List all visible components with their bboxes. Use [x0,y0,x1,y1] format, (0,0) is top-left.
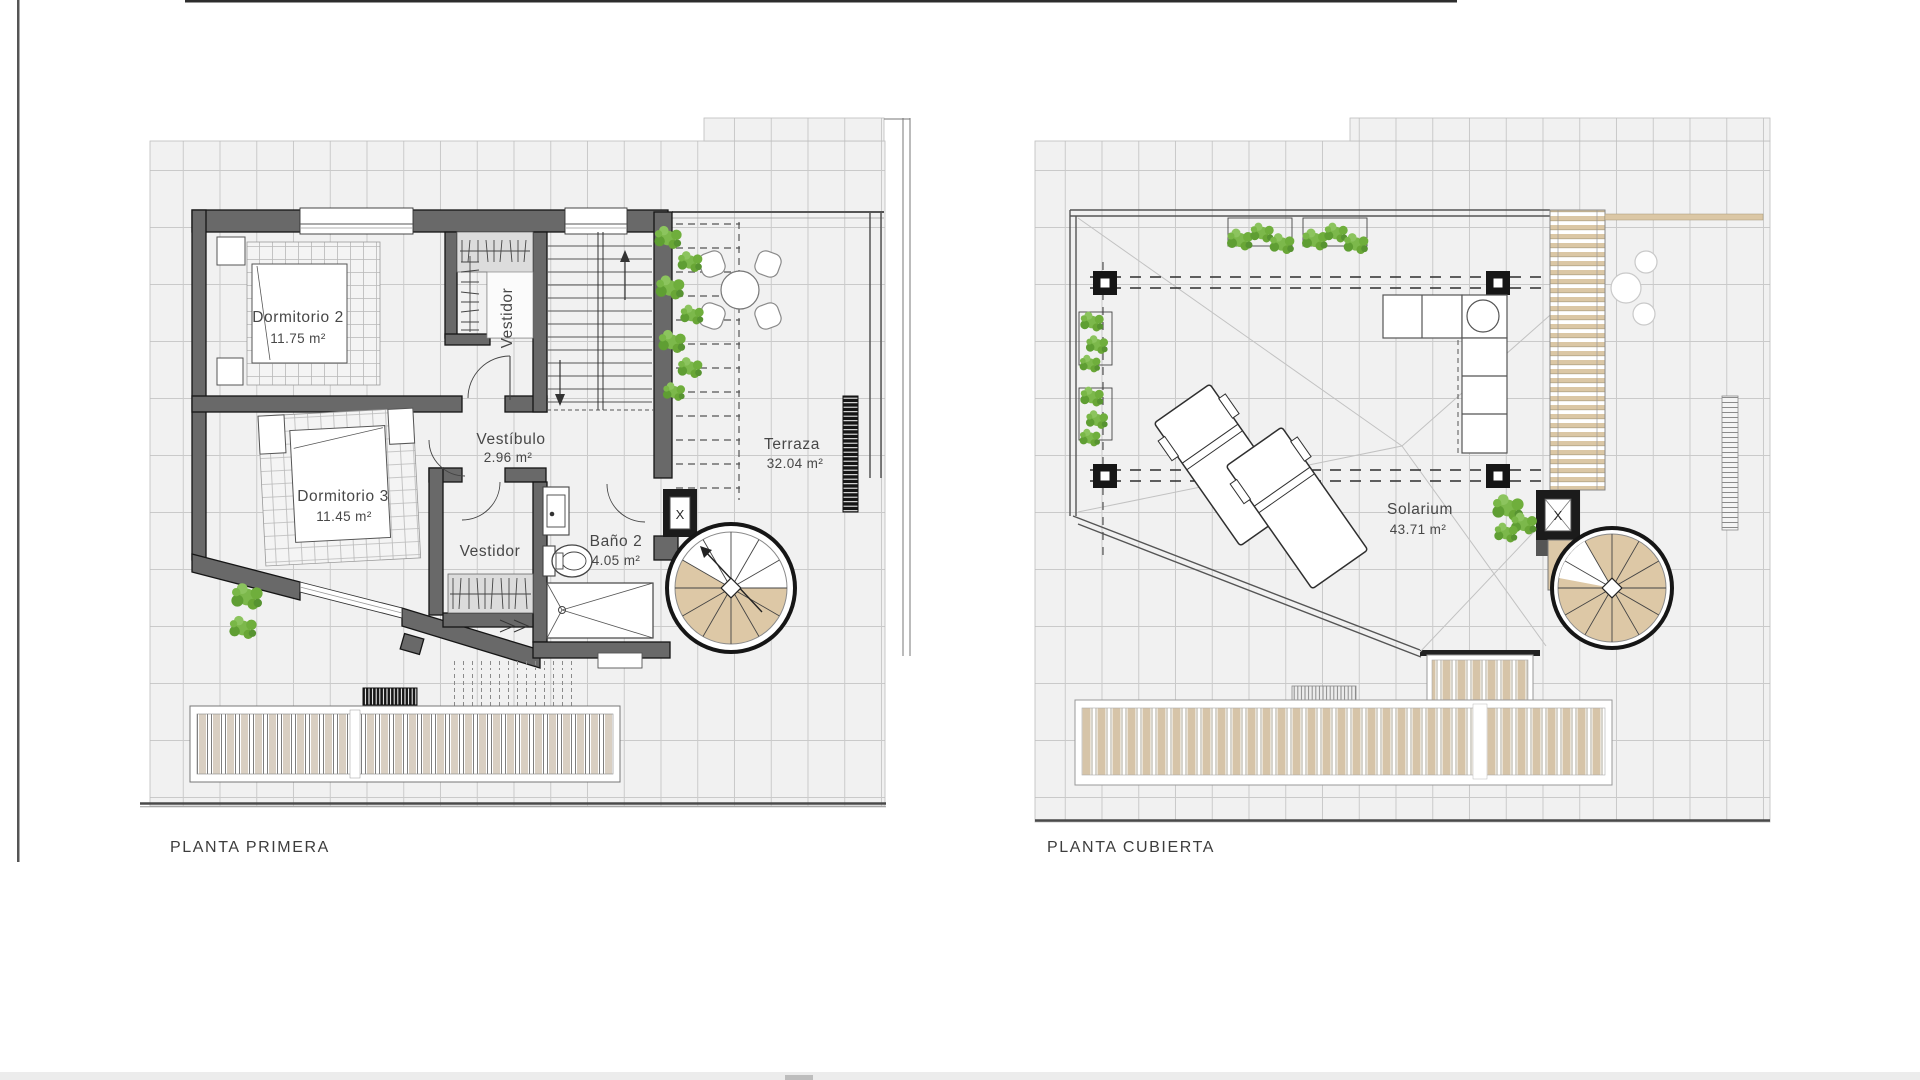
room-area: 43.71 m² [1390,522,1447,537]
bath-window [598,653,642,668]
room-label: Dormitorio 3 [297,488,389,505]
toilet-icon [543,545,592,577]
room-label: Solarium [1387,501,1453,518]
deck-left [190,706,620,782]
deck-right-upper [1427,655,1533,703]
shaft-label: X [676,507,685,522]
shaft-box: X [663,489,697,537]
plan-drawing: X [0,0,1920,1080]
room-area: 2.96 m² [484,450,533,465]
floor-plan-sheet: X [0,0,1920,1080]
round-table-icon [721,271,759,309]
room-area: 11.75 m² [270,331,326,346]
room-label: Terraza [764,436,820,453]
bottom-strip [0,1072,1920,1080]
ladder-strip [1722,396,1738,530]
spiral-staircase [1548,528,1672,648]
spiral-staircase [667,524,795,652]
right-plan-title: PLANTA CUBIERTA [1047,839,1215,856]
left-plan: X [140,118,910,807]
balcony-railing-hatch [453,658,573,706]
room-label: Vestidor [499,288,516,349]
louver-grille-icon [363,688,417,705]
room-label: Vestidor [460,543,521,560]
room-label: Vestíbulo [476,431,545,448]
left-plan-title: PLANTA PRIMERA [170,839,330,856]
room-area: 11.45 m² [316,509,372,524]
room-area: 32.04 m² [767,456,824,471]
right-plan: X [1035,118,1770,822]
left-plan-paving-notch [704,118,884,141]
room-label: Dormitorio 2 [252,309,344,326]
right-plan-paving-notch [1350,118,1770,141]
deck-right-main [1075,700,1612,785]
sheet-border-top [185,0,1457,3]
property-line [884,118,910,656]
louver-shutter-icon [843,396,858,512]
sheet-border-left [17,0,20,862]
room-area: 4.05 m² [592,553,641,568]
shaft-label: X [1554,508,1563,523]
bottom-strip-mark [785,1075,813,1080]
shower-icon [547,583,653,638]
room-label: Baño 2 [590,533,643,550]
